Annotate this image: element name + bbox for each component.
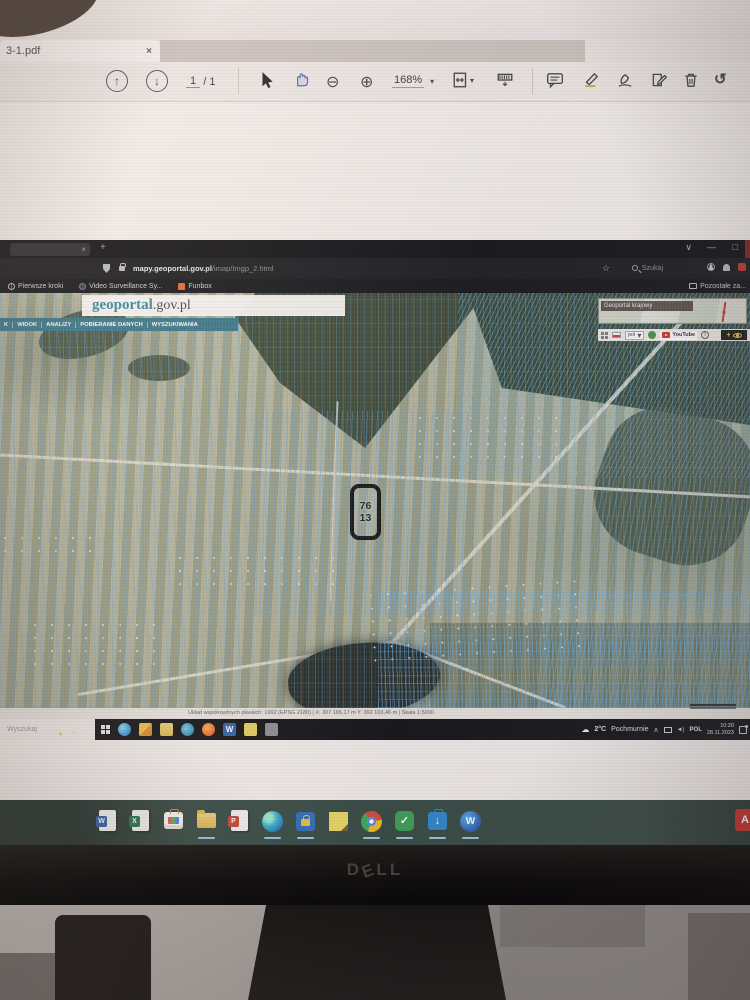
new-tab-button[interactable]: + <box>100 242 106 253</box>
photos-icon[interactable] <box>139 723 152 736</box>
minimap-route-line <box>722 302 726 322</box>
bookmark-item[interactable]: Video Surveillance Sy... <box>79 283 162 290</box>
zoom-level-value[interactable]: 168% <box>392 74 424 88</box>
fit-width-icon[interactable] <box>496 71 514 89</box>
monitor-screen: 3-1.pdf × ↑ ↓ 1 / 1 ⊖ ⊕ 168% ▾ <box>0 0 750 845</box>
pdf-document-tab[interactable]: 3-1.pdf × <box>0 40 160 62</box>
eye-icon <box>733 333 742 338</box>
browser-tab[interactable]: × <box>10 243 90 256</box>
geoportal-map[interactable]: geoportal .gov.pl K WIDOK ANALIZY POBIER… <box>0 293 750 708</box>
geoportal-menu: K WIDOK ANALIZY POBIERANIE DANYCH WYSZUK… <box>0 318 238 331</box>
screenshot-taskbar: Wyszukaj ✦ ✦ W ☁ 2°C Pochmurnie ∧ <box>0 719 750 740</box>
embedded-screenshot: × + ∨ — □ mapy.geoportal.gov.pl/imap/Img… <box>0 240 750 740</box>
search-placeholder: Szukaj <box>642 265 663 272</box>
folder-icon <box>689 283 697 289</box>
url-text[interactable]: mapy.geoportal.gov.pl/imap/Imgp_2.html <box>133 264 274 273</box>
cadastral-parcel-lines <box>378 591 750 708</box>
youtube-link[interactable]: YouTube <box>660 331 697 340</box>
toolbar-divider <box>238 68 239 94</box>
chrome-icon[interactable] <box>360 809 383 834</box>
fit-page-icon[interactable]: ▾ <box>452 71 474 89</box>
tray-date: 28.11.2023 <box>707 730 734 736</box>
pdf-tab-close-icon[interactable]: × <box>146 46 152 57</box>
search-icon <box>632 265 638 271</box>
firefox-icon[interactable] <box>202 723 215 736</box>
page-separator: / <box>203 76 206 88</box>
map-status-bar: Układ współrzędnych płaskich: 1992 (EPSG… <box>0 708 750 719</box>
language-select[interactable]: pol▾ <box>625 331 644 340</box>
outlook-icon[interactable] <box>181 723 194 736</box>
menu-item[interactable]: ANALIZY <box>42 322 76 328</box>
tray-chevron-icon[interactable]: ∧ <box>653 726 658 734</box>
page-down-button[interactable]: ↓ <box>146 70 168 92</box>
notifications-icon[interactable] <box>723 264 730 271</box>
language-caret-icon: ▾ <box>637 331 641 340</box>
password-app-icon[interactable] <box>294 809 317 834</box>
cadastral-parcel-lines <box>0 293 250 708</box>
word-icon[interactable]: W <box>96 809 119 834</box>
camera-icon <box>79 283 86 290</box>
desk-shadow <box>0 953 62 1000</box>
zoom-level-select[interactable]: 168% ▾ <box>392 74 434 88</box>
fill-sign-icon[interactable] <box>650 71 668 89</box>
minimap-title: Geoportal krajowy <box>601 301 693 311</box>
speaker-icon[interactable]: ◄) <box>677 727 685 733</box>
start-button-icon[interactable] <box>101 725 110 734</box>
sparkle-icon: ✦ <box>72 722 75 743</box>
menu-item[interactable]: POBIERANIE DANYCH <box>76 322 147 328</box>
desk-shadow <box>500 905 645 947</box>
page-current[interactable]: 1 <box>186 75 200 88</box>
pdf-toolbar: ↑ ↓ 1 / 1 ⊖ ⊕ 168% ▾ ▾ <box>0 62 750 102</box>
other-bookmarks-button[interactable]: Pozostałe za... <box>689 283 746 290</box>
zoom-out-icon[interactable]: ⊖ <box>326 72 339 92</box>
store-briefcase-icon[interactable] <box>162 809 185 834</box>
bookmark-star-icon[interactable]: ☆ <box>602 263 610 274</box>
browser-titlebar: × + ∨ — □ <box>0 240 750 258</box>
youtube-play-icon <box>662 332 670 338</box>
shield-app-icon[interactable]: ✓ <box>393 809 416 834</box>
close-button-sliver[interactable] <box>745 240 750 258</box>
minimize-icon[interactable]: — <box>707 242 716 252</box>
windows-search-box[interactable]: Wyszukaj ✦ ✦ <box>0 719 95 740</box>
tab-list-chevron-icon[interactable]: ∨ <box>685 242 692 253</box>
highlighter-icon[interactable] <box>582 71 600 89</box>
geoportal-logo[interactable]: geoportal .gov.pl <box>82 295 345 316</box>
monitor-bezel: D E L L <box>0 845 750 905</box>
extension-icon[interactable] <box>738 263 746 271</box>
action-center-icon[interactable] <box>739 726 747 734</box>
clock[interactable]: 10:20 28.11.2023 <box>707 723 734 736</box>
desk-object <box>688 913 750 1000</box>
ink-signature-icon[interactable] <box>616 71 634 89</box>
monitor-stand <box>248 905 506 1000</box>
keyboard-language[interactable]: POL <box>690 727 702 733</box>
geoportal-widget-row: pol▾ YouTube f + <box>598 329 750 341</box>
sparkle-icon: ✦ <box>58 725 63 746</box>
page-up-button[interactable]: ↑ <box>106 70 128 92</box>
bookmark-item[interactable]: Pierwsze kroki <box>8 283 63 290</box>
lock-icon[interactable] <box>119 266 125 271</box>
weather-condition[interactable]: Pochmurnie <box>611 726 648 733</box>
flag-icon[interactable] <box>612 332 621 338</box>
menu-item[interactable]: K <box>0 322 13 328</box>
dell-logo: D E L L <box>347 860 403 880</box>
edge-icon[interactable] <box>118 723 131 736</box>
webex-icon[interactable]: W <box>459 809 482 834</box>
account-icon[interactable] <box>707 263 715 271</box>
browser-urlbar[interactable]: mapy.geoportal.gov.pl/imap/Imgp_2.html ☆… <box>0 258 750 279</box>
zoom-caret-icon[interactable]: ▾ <box>430 77 434 86</box>
windows-search-label: Wyszukaj <box>7 726 37 733</box>
edge-icon[interactable] <box>261 809 284 834</box>
undo-icon[interactable]: ↺ <box>714 70 727 88</box>
language-value: pol <box>628 332 635 338</box>
tray-time: 10:20 <box>720 723 734 729</box>
weather-cloud-icon[interactable]: ☁ <box>581 725 589 734</box>
bip-icon[interactable] <box>648 331 656 339</box>
pdf-window-strip <box>0 0 750 40</box>
toolbar-divider <box>532 68 533 94</box>
youtube-label: YouTube <box>672 332 695 338</box>
selected-parcel-76-13[interactable]: 76 13 <box>350 484 381 540</box>
excel-icon[interactable]: X <box>129 809 152 834</box>
map-scale-bar <box>690 704 736 706</box>
desk-surface <box>0 905 750 1000</box>
coordinates-scale-text: Układ współrzędnych płaskich: 1992 (EPSG… <box>188 710 434 716</box>
menu-item[interactable]: WYSZUKIWANIA <box>148 322 202 328</box>
file-explorer-icon[interactable] <box>160 723 173 736</box>
word-icon[interactable]: W <box>223 723 236 736</box>
hand-pan-icon[interactable] <box>292 70 310 88</box>
trash-icon[interactable] <box>682 71 700 89</box>
software-center-icon[interactable]: ↓ <box>426 809 449 834</box>
bookmark-label: Video Surveillance Sy... <box>89 283 162 290</box>
fit-page-caret-icon[interactable]: ▾ <box>470 76 474 85</box>
bookmark-item[interactable]: Funbox <box>178 283 211 290</box>
url-domain: mapy.geoportal.gov.pl <box>133 264 212 273</box>
social-icon[interactable]: f <box>701 331 709 339</box>
file-explorer-icon[interactable] <box>195 809 218 834</box>
adobe-acrobat-icon[interactable]: A <box>735 809 750 831</box>
globe-icon <box>8 283 15 290</box>
desk-object <box>55 915 151 1000</box>
zoom-in-icon[interactable]: ⊕ <box>360 72 373 92</box>
app-icon[interactable] <box>265 723 278 736</box>
browser-tab-close-icon[interactable]: × <box>81 245 86 254</box>
logo-primary: geoportal <box>92 297 153 314</box>
overview-minimap[interactable]: Geoportal krajowy <box>598 298 747 324</box>
weather-temperature[interactable]: 2°C <box>594 726 606 733</box>
bookmarks-bar: Pierwsze kroki Video Surveillance Sy... … <box>0 279 750 293</box>
restore-icon[interactable]: □ <box>733 242 738 252</box>
page-total: 1 <box>209 76 215 88</box>
sticky-notes-icon[interactable] <box>244 723 257 736</box>
logo-suffix: .gov.pl <box>153 298 191 314</box>
bookmark-label: Funbox <box>188 283 211 290</box>
parcel-number-bottom: 13 <box>360 512 372 524</box>
bookmark-label: Pierwsze kroki <box>18 283 63 290</box>
host-windows-taskbar: W X P ✓ ↓ W A <box>0 800 750 845</box>
menu-item[interactable]: WIDOK <box>13 322 42 328</box>
font-size-plus-icon: + <box>726 332 730 339</box>
sticky-notes-icon[interactable] <box>327 809 350 834</box>
funbox-icon <box>178 283 185 290</box>
display-tray-icon[interactable] <box>664 727 672 733</box>
powerpoint-icon[interactable]: P <box>228 809 251 834</box>
brand-letter: L <box>390 860 403 880</box>
page-number-indicator[interactable]: 1 / 1 <box>186 75 215 88</box>
parcel-number-top: 76 <box>360 500 372 512</box>
system-tray: ☁ 2°C Pochmurnie ∧ ◄) POL 10:20 28.11.20… <box>581 719 747 740</box>
tracking-shield-icon[interactable] <box>103 264 110 273</box>
photo-of-monitor: 3-1.pdf × ↑ ↓ 1 / 1 ⊖ ⊕ 168% ▾ <box>0 0 750 1000</box>
pdf-tabstrip-band <box>160 40 585 62</box>
pdf-tab-title: 3-1.pdf <box>6 45 40 57</box>
comment-icon[interactable] <box>546 71 564 89</box>
contrast-toggle[interactable]: + <box>721 330 747 340</box>
grid-icon[interactable] <box>601 332 608 339</box>
select-cursor-icon[interactable] <box>258 71 276 89</box>
url-path: /imap/Imgp_2.html <box>212 264 274 273</box>
other-bookmarks-label: Pozostałe za... <box>700 283 746 290</box>
